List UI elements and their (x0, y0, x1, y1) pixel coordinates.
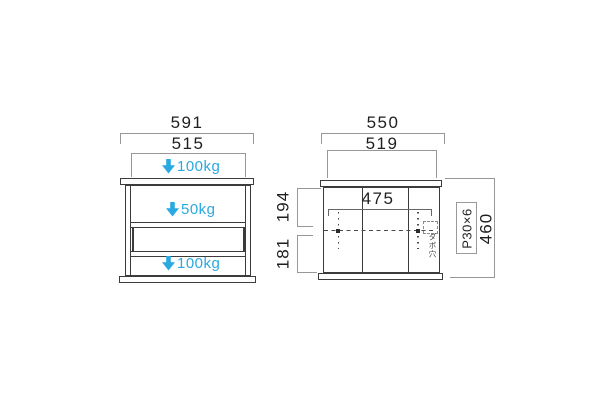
load-value-bottom: 100kg (177, 255, 220, 272)
lower-height-tick-bottom (297, 272, 317, 273)
upper-height-tick-top (297, 188, 321, 189)
shelf-width-label: 475 (341, 190, 415, 208)
shelf-pin-left (336, 229, 340, 233)
front-recess-right-edge (243, 228, 245, 252)
front-right-inner-wall (245, 186, 246, 275)
down-arrow-icon (166, 202, 179, 217)
side-outer-width-tick-right (444, 133, 445, 144)
shelf-pin-right (416, 229, 420, 233)
lower-height-line (297, 235, 298, 273)
front-recess-left-edge (132, 228, 134, 252)
load-value-top: 100kg (177, 158, 220, 175)
upper-height-tick-bottom (297, 226, 313, 227)
front-inner-width-line (131, 153, 246, 154)
pitch-label: P30×6 (459, 199, 476, 259)
load-value-middle: 50kg (181, 201, 216, 218)
side-inner-width-tick-left (327, 150, 328, 178)
front-bottom-panel (119, 276, 256, 283)
front-outer-width-tick-right (253, 133, 254, 144)
front-inner-width-label: 515 (151, 135, 225, 153)
load-label-middle: 50kg (166, 201, 216, 218)
shelf-width-line (328, 209, 432, 210)
front-inner-width-tick-right (245, 153, 246, 177)
side-inner-width-line (327, 150, 437, 151)
load-label-top: 100kg (162, 158, 220, 175)
down-arrow-icon (162, 159, 175, 174)
total-height-line (494, 178, 495, 278)
front-top-panel (120, 178, 254, 185)
side-outer-width-label: 550 (346, 114, 420, 132)
lower-height-tick-top (297, 235, 313, 236)
down-arrow-icon (162, 256, 175, 271)
upper-height-line (297, 188, 298, 227)
lower-height-label: 181 (275, 232, 292, 276)
side-inner-width-tick-right (436, 150, 437, 178)
front-inner-width-tick-left (131, 153, 132, 177)
front-outer-width-tick-left (120, 133, 121, 144)
dimension-drawing: 591 515 100kg 50kg (0, 0, 601, 400)
side-top-panel (320, 180, 442, 187)
total-height-tick-bottom (450, 277, 495, 278)
front-outer-width-label: 591 (150, 114, 224, 132)
upper-height-label: 194 (275, 185, 292, 229)
total-height-label: 460 (478, 207, 495, 251)
pin-note-text: ダボ穴 (428, 233, 436, 267)
total-height-tick-top (445, 178, 495, 179)
side-bottom-panel (318, 273, 443, 280)
front-middle-shelf (131, 222, 245, 228)
shelf-width-tick-right (431, 209, 432, 216)
side-outer-width-tick-left (321, 133, 322, 144)
shelf-width-tick-left (328, 209, 329, 216)
load-label-bottom: 100kg (162, 255, 220, 272)
